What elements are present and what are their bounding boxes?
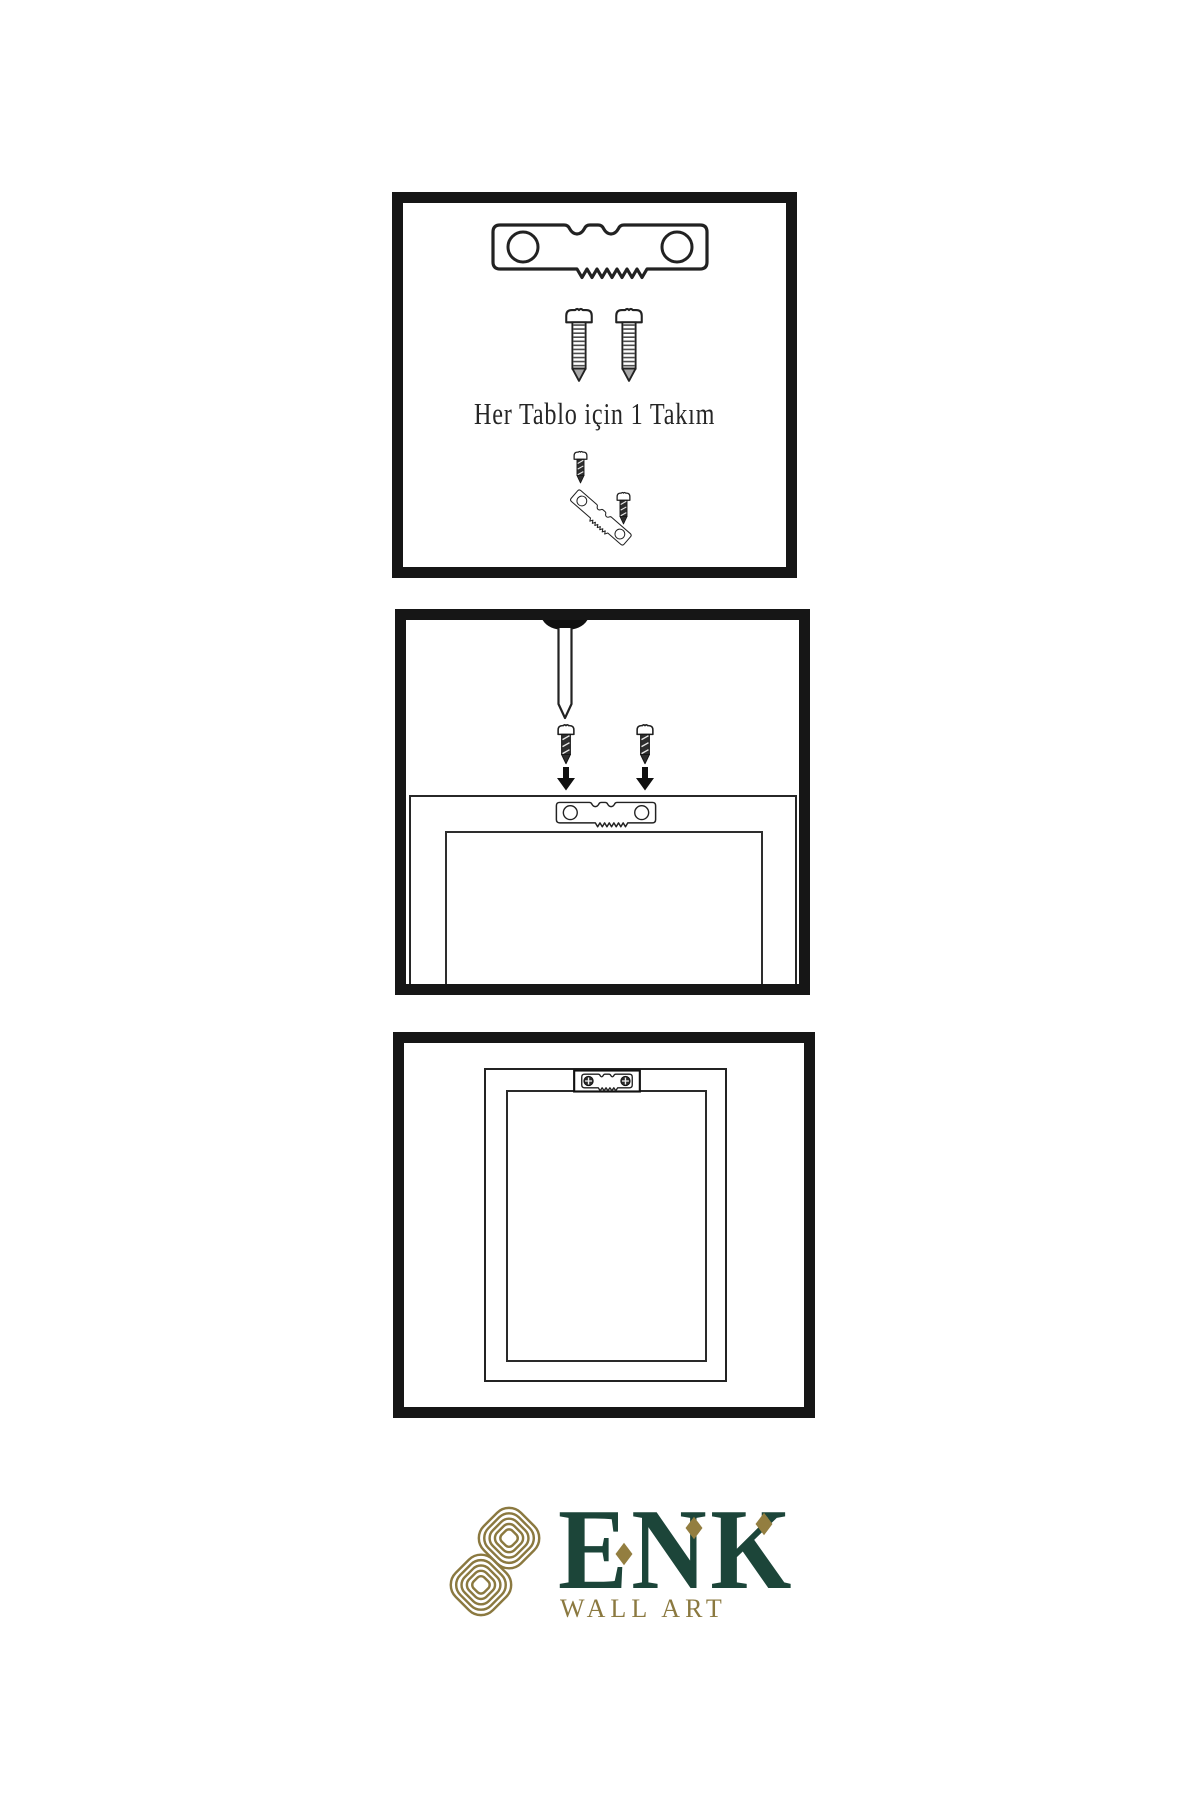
instruction-sheet: Her Tablo için 1 Takım	[0, 0, 1200, 1800]
frame-back-inner-outline	[445, 831, 763, 984]
kit-caption: Her Tablo için 1 Takım	[403, 396, 786, 432]
arrow-down-icon	[635, 767, 655, 791]
brand-name: ENK	[558, 1492, 795, 1608]
picture-mat-outline	[506, 1090, 707, 1362]
interlocked-knot-icon	[436, 1496, 554, 1627]
sawtooth-hanger-icon	[490, 222, 710, 280]
screw-icon	[612, 305, 646, 385]
arrow-down-icon	[556, 767, 576, 791]
brand-tagline: WALL ART	[560, 1594, 727, 1624]
dark-screw-icon	[634, 723, 656, 765]
wall-nail-icon	[542, 619, 588, 721]
sawtooth-hanger-icon	[555, 801, 657, 828]
panel-mounting-steps	[395, 609, 810, 995]
kit-caption-text: Her Tablo için 1 Takım	[474, 396, 715, 432]
screw-icon	[562, 305, 596, 385]
dark-screw-icon	[555, 723, 577, 765]
panel-hardware-kit: Her Tablo için 1 Takım	[392, 192, 797, 578]
dark-screw-icon	[572, 450, 589, 484]
hanger-plate-icon	[573, 1069, 641, 1093]
panel-finished-frame	[393, 1032, 815, 1418]
dark-screw-icon	[615, 491, 632, 525]
